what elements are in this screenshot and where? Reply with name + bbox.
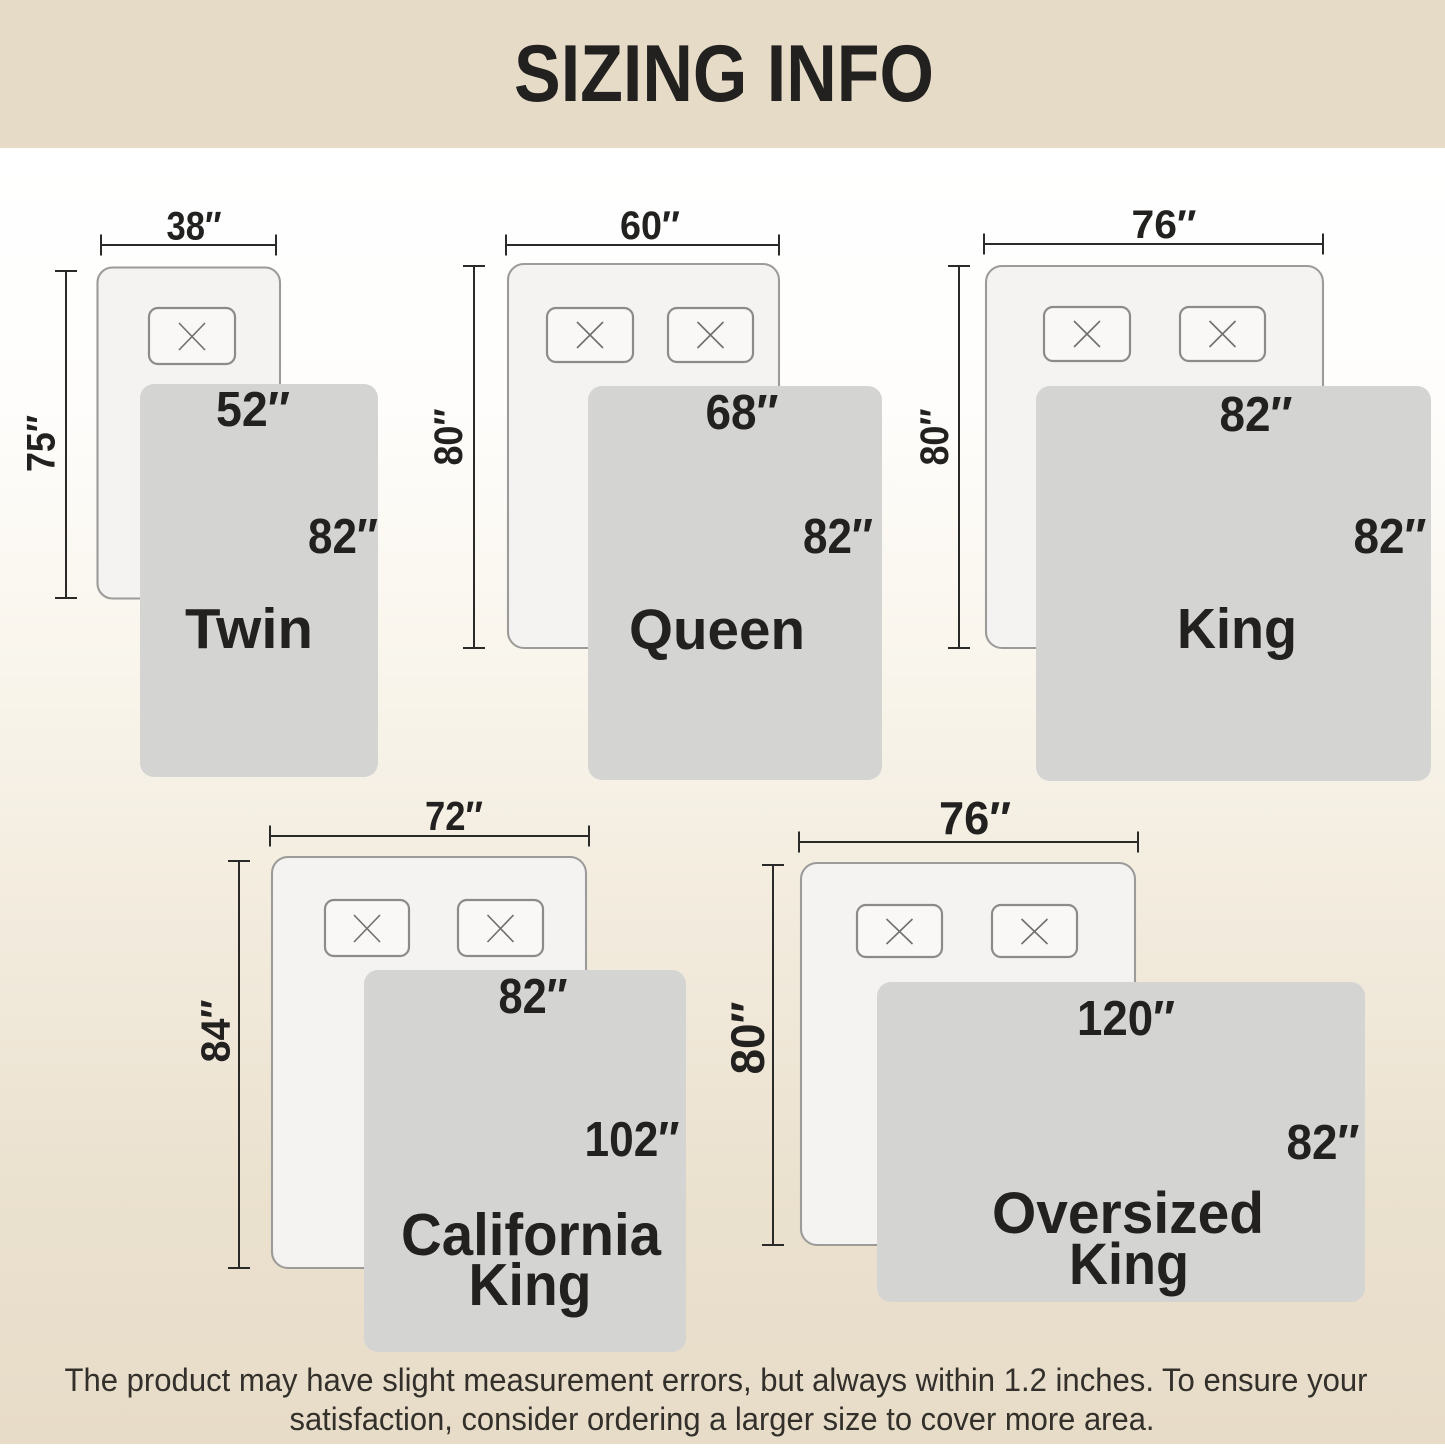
- svg-text:SIZING INFO: SIZING INFO: [514, 29, 934, 119]
- svg-text:75″: 75″: [20, 415, 64, 472]
- svg-text:The product may have slight me: The product may have slight measurement …: [65, 1362, 1368, 1398]
- svg-text:76″: 76″: [939, 792, 1011, 844]
- svg-text:52″: 52″: [216, 383, 290, 437]
- svg-text:82″: 82″: [1220, 388, 1293, 442]
- svg-text:82″: 82″: [308, 510, 378, 564]
- svg-text:82″: 82″: [1354, 510, 1427, 564]
- svg-text:King: King: [469, 1252, 592, 1318]
- svg-text:satisfaction, consider orderin: satisfaction, consider ordering a larger…: [290, 1401, 1155, 1437]
- svg-text:72″: 72″: [425, 793, 483, 839]
- svg-text:82″: 82″: [1287, 1116, 1360, 1170]
- svg-text:King: King: [1069, 1232, 1189, 1297]
- svg-text:68″: 68″: [706, 386, 779, 440]
- svg-text:76″: 76″: [1132, 203, 1197, 247]
- svg-text:82″: 82″: [803, 510, 873, 564]
- svg-text:84″: 84″: [193, 1000, 239, 1063]
- svg-text:102″: 102″: [585, 1113, 680, 1167]
- svg-text:82″: 82″: [499, 970, 568, 1024]
- svg-text:80″: 80″: [721, 1002, 774, 1075]
- svg-text:120″: 120″: [1077, 992, 1175, 1046]
- svg-text:Twin: Twin: [185, 597, 313, 661]
- svg-text:King: King: [1177, 597, 1297, 661]
- svg-text:60″: 60″: [620, 204, 680, 248]
- svg-text:80″: 80″: [427, 408, 471, 465]
- svg-text:38″: 38″: [167, 205, 222, 249]
- svg-text:Queen: Queen: [629, 598, 805, 662]
- svg-text:80″: 80″: [913, 408, 957, 465]
